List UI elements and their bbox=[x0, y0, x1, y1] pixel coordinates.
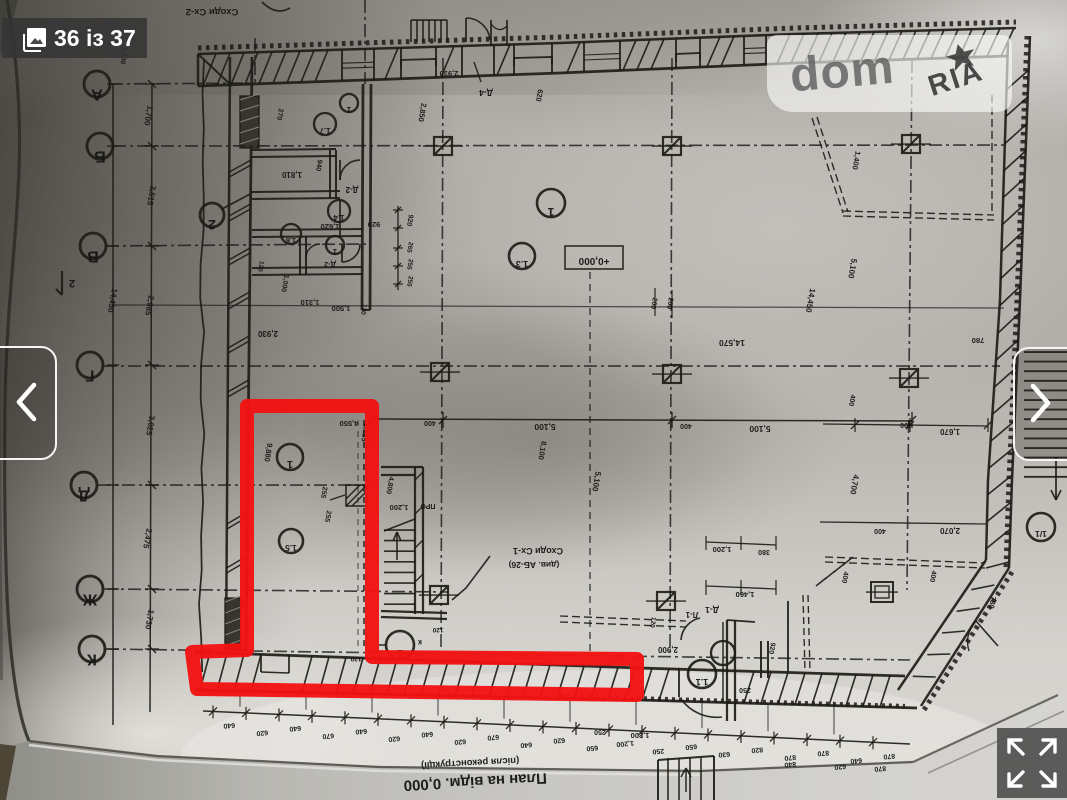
svg-text:2: 2 bbox=[69, 277, 75, 289]
svg-text:670: 670 bbox=[487, 733, 499, 741]
svg-text:640: 640 bbox=[223, 721, 235, 729]
svg-text:1,670: 1,670 bbox=[939, 427, 960, 436]
svg-text:Д-2: Д-2 bbox=[324, 260, 336, 269]
svg-text:4,550: 4,550 bbox=[340, 419, 359, 428]
svg-text:2,070: 2,070 bbox=[939, 526, 960, 535]
svg-text:1.6: 1.6 bbox=[286, 236, 296, 245]
svg-text:Д: Д bbox=[78, 487, 90, 504]
svg-text:870: 870 bbox=[883, 752, 895, 760]
svg-text:620: 620 bbox=[553, 736, 565, 744]
svg-text:840: 840 bbox=[784, 760, 796, 768]
svg-text:380: 380 bbox=[758, 548, 770, 555]
svg-text:1,200: 1,200 bbox=[390, 503, 409, 512]
svg-text:Б: Б bbox=[94, 148, 106, 165]
svg-text:630: 630 bbox=[718, 750, 730, 758]
svg-text:400: 400 bbox=[900, 421, 912, 428]
svg-text:400: 400 bbox=[424, 419, 436, 426]
svg-text:640: 640 bbox=[421, 730, 433, 738]
svg-text:1,460: 1,460 bbox=[736, 590, 755, 599]
svg-text:620: 620 bbox=[256, 728, 268, 736]
svg-text:920: 920 bbox=[368, 220, 381, 229]
svg-text:2: 2 bbox=[208, 217, 216, 233]
svg-text:640: 640 bbox=[355, 727, 367, 735]
svg-text:Д-1: Д-1 bbox=[705, 605, 719, 615]
svg-text:670: 670 bbox=[322, 731, 334, 739]
svg-text:5,100: 5,100 bbox=[534, 422, 556, 432]
svg-text:870: 870 bbox=[874, 764, 886, 772]
svg-text:Д-2: Д-2 bbox=[345, 185, 358, 194]
svg-text:1,620: 1,620 bbox=[321, 222, 340, 231]
svg-text:780: 780 bbox=[972, 336, 985, 345]
svg-text:2,930: 2,930 bbox=[440, 69, 459, 78]
svg-text:Сходи Сх-2: Сходи Сх-2 bbox=[186, 6, 239, 17]
svg-text:Д-4: Д-4 bbox=[479, 88, 493, 98]
svg-text:1/1: 1/1 bbox=[1035, 529, 1047, 539]
svg-text:1.7: 1.7 bbox=[319, 126, 331, 135]
svg-text:640: 640 bbox=[850, 756, 862, 764]
svg-text:В: В bbox=[87, 248, 99, 265]
svg-text:250: 250 bbox=[594, 728, 606, 735]
svg-text:1: 1 bbox=[547, 205, 554, 219]
svg-text:1,200: 1,200 bbox=[713, 545, 732, 554]
svg-text:1.3: 1.3 bbox=[516, 259, 529, 269]
svg-text:ПРО: ПРО bbox=[420, 502, 436, 509]
svg-text:1: 1 bbox=[346, 105, 351, 114]
svg-text:620: 620 bbox=[454, 737, 466, 745]
svg-text:К: К bbox=[87, 651, 97, 668]
svg-text:650: 650 bbox=[586, 744, 598, 752]
svg-text:Г: Г bbox=[85, 367, 94, 384]
svg-text:650: 650 bbox=[685, 742, 697, 750]
svg-text:5,100: 5,100 bbox=[749, 424, 771, 434]
svg-text:А: А bbox=[91, 86, 103, 103]
svg-text:870: 870 bbox=[817, 749, 829, 757]
svg-text:2,930: 2,930 bbox=[257, 329, 278, 338]
svg-text:+0,000: +0,000 bbox=[578, 255, 609, 266]
svg-text:1.1: 1.1 bbox=[696, 677, 709, 687]
svg-text:2,900: 2,900 bbox=[657, 645, 678, 654]
svg-text:120: 120 bbox=[432, 626, 443, 633]
svg-text:Ж: Ж bbox=[82, 591, 98, 608]
svg-text:870: 870 bbox=[784, 753, 796, 761]
svg-text:640: 640 bbox=[520, 740, 532, 748]
svg-text:820: 820 bbox=[751, 745, 763, 753]
svg-text:1,200: 1,200 bbox=[631, 731, 650, 740]
svg-text:Л-1: Л-1 bbox=[685, 610, 698, 619]
svg-text:14,570: 14,570 bbox=[719, 338, 745, 348]
svg-text:400: 400 bbox=[680, 422, 692, 429]
svg-text:250: 250 bbox=[739, 686, 751, 693]
svg-text:1.5: 1.5 bbox=[285, 543, 297, 553]
svg-text:640: 640 bbox=[289, 724, 301, 732]
svg-text:1: 1 bbox=[332, 247, 337, 256]
svg-text:620: 620 bbox=[388, 734, 400, 742]
svg-text:620: 620 bbox=[834, 762, 846, 770]
svg-text:1,810: 1,810 bbox=[281, 170, 302, 179]
svg-text:Сходи Сх-1: Сходи Сх-1 bbox=[513, 546, 563, 556]
svg-text:1: 1 bbox=[287, 458, 293, 470]
svg-text:120: 120 bbox=[350, 655, 361, 662]
svg-text:1.4: 1.4 bbox=[333, 213, 345, 222]
svg-text:400: 400 bbox=[874, 527, 886, 534]
svg-text:(див. АБ-26): (див. АБ-26) bbox=[508, 560, 559, 570]
svg-text:250: 250 bbox=[652, 747, 664, 755]
